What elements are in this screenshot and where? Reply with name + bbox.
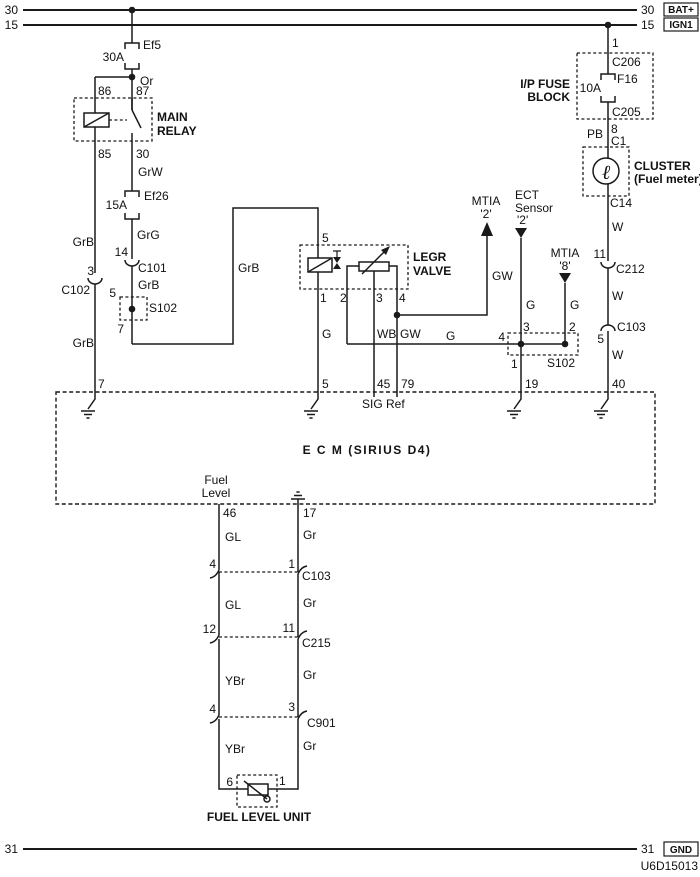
connector-c212-label: C212 <box>616 262 645 276</box>
connector-c102-icon <box>88 278 102 284</box>
connector-c215-row: 12 11 C215 <box>203 621 331 650</box>
ecm-pin46-label: 46 <box>223 506 237 520</box>
wire-color-wb: WB <box>377 327 396 341</box>
connector-c103-pin5: 5 <box>597 332 604 346</box>
egr-valve-name-2: VALVE <box>413 264 451 278</box>
wire-egr-feed <box>132 208 318 344</box>
wire-color-grb: GrB <box>138 278 159 292</box>
unit-pin1: 1 <box>279 774 286 788</box>
splice-dot <box>518 341 525 348</box>
connector-c102-label: C102 <box>61 283 90 297</box>
egr-pin3: 3 <box>376 291 383 305</box>
s102-pin3: 3 <box>523 320 530 334</box>
connector-c103-icon <box>601 325 615 331</box>
rail-30-left-label: 30 <box>5 3 19 17</box>
ect-and-s102: ECT Sensor '2' G 3 MTIA '8' G 2 G 4 1 S1… <box>347 188 579 392</box>
connector-c103-row: 4 1 C103 <box>209 557 331 583</box>
egr-valve: 5 LEGR VALVE 1 2 3 4 G WB GW <box>300 231 451 392</box>
mid-branch: GrW Ef26 15A GrG 14 C101 GrB 5 S102 7 Gr… <box>106 165 318 344</box>
ecm-pin40-blade <box>601 392 608 409</box>
connector-c101-icon <box>125 260 139 266</box>
fuse-f16-rating: 10A <box>580 81 601 95</box>
ground-icon <box>304 411 318 418</box>
fuse-ef5-name: Ef5 <box>143 38 161 52</box>
connector-c102-pin3: 3 <box>87 264 94 278</box>
wire-color-gl: GL <box>225 598 241 612</box>
main-relay-name-1: MAIN <box>157 110 188 124</box>
fuel-gauge-glyph: ℓ <box>602 160 611 184</box>
relay-pin87: 87 <box>136 84 150 98</box>
connector-c103-label: C103 <box>617 320 646 334</box>
connector-c103-label: C103 <box>302 569 331 583</box>
left-branch: GrB 3 C102 GrB 7 <box>61 235 105 392</box>
mtia-8-ref: '8' <box>559 259 570 273</box>
rail-15-left-label: 15 <box>5 18 19 32</box>
wire-egr-pin2 <box>347 266 359 344</box>
ecm-pin19-label: 19 <box>525 377 539 391</box>
connector-c206-label: C206 <box>612 55 641 69</box>
ip-fuse-block-name-1: I/P FUSE <box>520 77 570 91</box>
relay-coil-diagonal <box>84 113 109 127</box>
wire-color-w: W <box>612 348 624 362</box>
connector-c101-label: C101 <box>138 261 167 275</box>
relay-switch-icon <box>132 110 141 128</box>
fuse-f16-icon <box>601 74 615 102</box>
wire-color-gr: Gr <box>303 528 316 542</box>
s102-pin4: 4 <box>498 330 505 344</box>
egr-pintle-icon <box>333 251 341 269</box>
connector-c212-pin11: 11 <box>594 247 607 261</box>
wire-color-ybr: YBr <box>225 674 245 688</box>
fuse-ef26-icon <box>125 191 139 219</box>
fuel-level-circuit: GL Gr 4 1 C103 GL Gr 12 11 C215 YBr Gr 4… <box>203 504 336 824</box>
relay-pin86: 86 <box>98 84 112 98</box>
egr-pin2: 2 <box>340 291 347 305</box>
connector-c901-label: C901 <box>307 716 336 730</box>
fuel-level-unit-name: FUEL LEVEL UNIT <box>207 810 312 824</box>
fuel-level-unit: 6 1 FUEL LEVEL UNIT <box>207 774 312 824</box>
connector-c212-icon <box>601 262 615 268</box>
connector-hook-icon <box>210 635 219 643</box>
egr-pin4: 4 <box>399 291 406 305</box>
rail-30-right-label: 30 <box>641 3 655 17</box>
connector-hook-icon <box>298 711 307 719</box>
wire-color-gw: GW <box>400 327 421 341</box>
ground-icon <box>81 411 95 418</box>
off-page-up-arrow-icon <box>481 222 493 236</box>
wire-color-grb: GrB <box>73 235 94 249</box>
connector-c1-label: C1 <box>611 134 627 148</box>
wire-color-ybr: YBr <box>225 742 245 756</box>
mtia-2-ref: '2' <box>480 207 491 221</box>
ecm-pin40-label: 40 <box>612 377 626 391</box>
ecm-pin5-blade <box>311 392 318 409</box>
drawing-number: U6D15013 <box>641 859 699 873</box>
wiring-diagram-svg: 30 15 31 30 15 31 BAT+ IGN1 GND U6D15013… <box>0 0 700 877</box>
rail-15-right-label: 15 <box>641 18 655 32</box>
wire-color-gl: GL <box>225 530 241 544</box>
off-page-down-arrow-icon <box>559 273 571 283</box>
s102-pin2: 2 <box>569 320 576 334</box>
ect-sensor-ref: '2' <box>517 213 528 227</box>
wire-color-gw: GW <box>492 269 513 283</box>
egr-pin1: 1 <box>320 291 327 305</box>
wire-color-grb-riser: GrB <box>238 261 259 275</box>
wire-color-w: W <box>612 289 624 303</box>
egr-solenoid-diagonal <box>308 258 332 272</box>
wire-color-g: G <box>322 327 331 341</box>
splice-s102-pin5: 5 <box>109 286 116 300</box>
wire-color-gr: Gr <box>303 668 316 682</box>
gnd-tag: GND <box>670 845 692 856</box>
connector-c901-row: 4 3 C901 <box>209 700 336 730</box>
splice-s102-label: S102 <box>149 301 177 315</box>
splice-s102-pin7: 7 <box>117 322 124 336</box>
ground-up-icon <box>291 492 305 505</box>
connector-pin3: 3 <box>288 700 295 714</box>
connector-c101-pin14: 14 <box>115 245 129 259</box>
mtia-2-reference: MTIA '2' GW <box>394 194 514 318</box>
mtia-8-name: MTIA <box>551 246 580 260</box>
ecm-fuel-label-2: Level <box>202 486 231 500</box>
mtia-2-name: MTIA <box>472 194 501 208</box>
fuse-ef26-name: Ef26 <box>144 189 169 203</box>
connector-pin1: 1 <box>288 557 295 571</box>
rail-31-left-label: 31 <box>5 842 19 856</box>
off-page-down-arrow-icon <box>515 228 527 238</box>
ecm-fuel-label-1: Fuel <box>204 473 227 487</box>
splice-dot <box>562 341 569 348</box>
ecm-pin5-label: 5 <box>322 377 329 391</box>
ecm-pin7-blade <box>88 392 95 409</box>
connector-c205-label: C205 <box>612 105 641 119</box>
ecm-pin17-label: 17 <box>303 506 317 520</box>
connector-pin4: 4 <box>209 557 216 571</box>
wire-color-pb: PB <box>587 127 603 141</box>
connector-pin11: 11 <box>283 621 296 635</box>
ecm-pin19-blade <box>514 392 521 409</box>
connector-c14-label: C14 <box>610 196 632 210</box>
cluster-name-2: (Fuel meter) <box>634 172 700 186</box>
ecm-pin79-label: 79 <box>401 377 415 391</box>
connector-c215-label: C215 <box>302 636 331 650</box>
relay-pin30: 30 <box>136 147 150 161</box>
main-relay-name-2: RELAY <box>157 124 197 138</box>
splice-s102b-label: S102 <box>547 356 575 370</box>
fuse-ef5-icon <box>125 43 139 69</box>
egr-valve-name-1: LEGR <box>413 250 447 264</box>
cluster-name-1: CLUSTER <box>634 159 691 173</box>
ground-icon <box>594 411 608 418</box>
s102-pin1: 1 <box>511 357 518 371</box>
ecm-sig-ref-label: SIG Ref <box>362 397 405 411</box>
wire-color-gr: Gr <box>303 596 316 610</box>
ect-sensor-name-1: ECT <box>515 188 540 202</box>
bat-tag: BAT+ <box>668 5 694 16</box>
wire-color-g: G <box>570 298 579 312</box>
fuse-f16-name: F16 <box>617 72 638 86</box>
ecm-title: E C M (SIRIUS D4) <box>303 443 432 457</box>
connector-pin12: 12 <box>203 622 217 636</box>
wire-color-grg: GrG <box>137 228 160 242</box>
wire-color-w: W <box>612 220 624 234</box>
wire-color-grw: GrW <box>138 165 163 179</box>
connector-hook-icon <box>210 570 219 578</box>
egr-potentiometer-icon <box>359 262 389 271</box>
ecm-pin45-label: 45 <box>377 377 391 391</box>
wire-color-grb: GrB <box>73 336 94 350</box>
connector-hook-icon <box>210 715 219 723</box>
fuse-ef5-rating: 30A <box>103 50 124 64</box>
fuse-block-pin1: 1 <box>612 36 619 50</box>
ip-fuse-block-name-2: BLOCK <box>527 90 570 104</box>
ecm-pin7-label: 7 <box>98 377 105 391</box>
wire-color-g-run: G <box>446 329 455 343</box>
connector-pin4: 4 <box>209 702 216 716</box>
main-relay-box <box>74 98 152 141</box>
egr-pin5: 5 <box>322 231 329 245</box>
unit-pin6: 6 <box>226 775 233 789</box>
rail-31-right-label: 31 <box>641 842 655 856</box>
ground-icon <box>507 411 521 418</box>
wiring-diagram-page: 30 15 31 30 15 31 BAT+ IGN1 GND U6D15013… <box>0 0 700 877</box>
fuse-ef26-rating: 15A <box>106 198 127 212</box>
wire-color-gr: Gr <box>303 739 316 753</box>
ign1-tag: IGN1 <box>669 20 693 31</box>
splice-dot <box>129 306 136 313</box>
ecm: E C M (SIRIUS D4) 5 45 79 SIG Ref Fuel L… <box>56 377 655 520</box>
wire-color-g: G <box>526 298 535 312</box>
relay-pin85: 85 <box>98 147 112 161</box>
